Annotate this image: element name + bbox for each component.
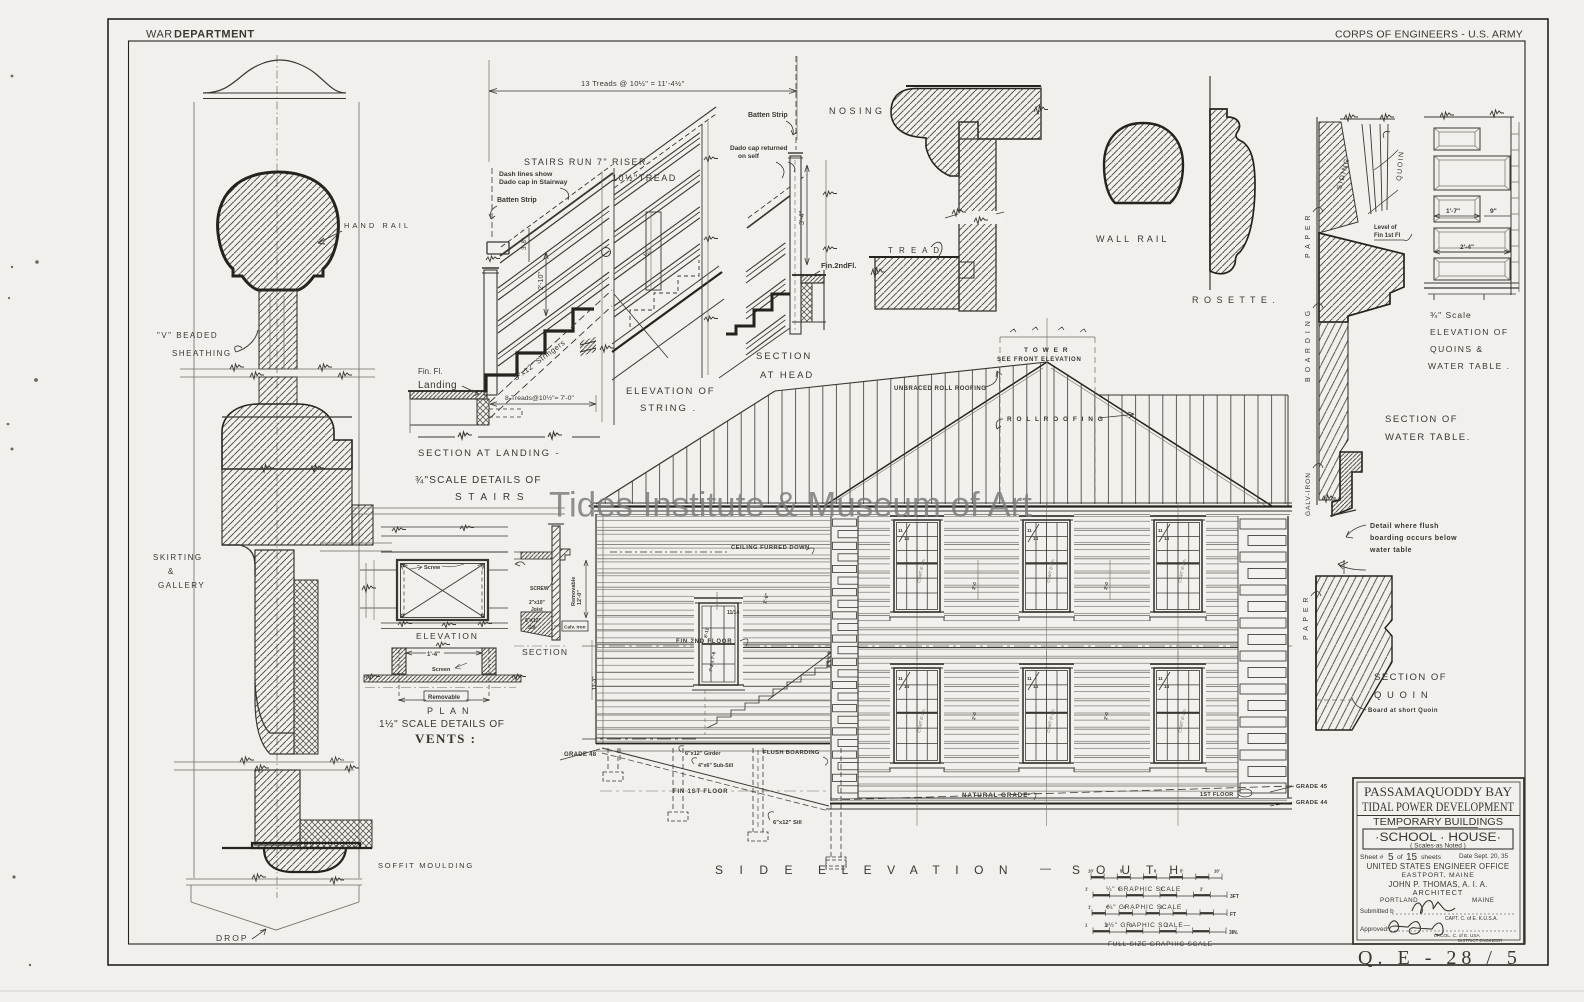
svg-text:¾" GRAPHIC SCALE: ¾" GRAPHIC SCALE — [1107, 904, 1182, 911]
svg-text:Joist: Joist — [531, 607, 543, 613]
svg-text:1½" GRAPHIC SCALE—: 1½" GRAPHIC SCALE— — [1104, 921, 1191, 929]
svg-text:—: — — [1040, 863, 1051, 875]
svg-text:11: 11 — [1158, 528, 1163, 533]
svg-text:SEE FRONT ELEVATION: SEE FRONT ELEVATION — [997, 357, 1082, 363]
svg-text:Approved:: Approved: — [1360, 926, 1389, 933]
svg-text:8-Treads@10½"= 7'-0": 8-Treads@10½"= 7'-0" — [505, 394, 574, 402]
svg-text:GALV-IRON: GALV-IRON — [1305, 472, 1312, 516]
svg-text:SHEATHING: SHEATHING — [172, 349, 232, 358]
svg-text:11: 11 — [1027, 676, 1032, 681]
svg-text:WALL RAIL: WALL RAIL — [1096, 234, 1169, 244]
svg-text:Fin. Fl.: Fin. Fl. — [418, 367, 442, 376]
svg-text:SECTION AT LANDING -: SECTION AT LANDING - — [418, 448, 560, 459]
svg-text:B O A R D I N G: B O A R D I N G — [1305, 309, 1312, 382]
svg-text:1ST FLOOR: 1ST FLOOR — [1200, 792, 1234, 798]
svg-text:UNBRACED ROLL ROOFING: UNBRACED ROLL ROOFING — [894, 386, 986, 392]
svg-text:Dash lines show: Dash lines show — [499, 171, 553, 178]
svg-text:GRADE 44: GRADE 44 — [1296, 800, 1328, 806]
svg-text:Board at short Quoin: Board at short Quoin — [1368, 708, 1438, 714]
svg-text:14: 14 — [904, 536, 910, 541]
svg-text:13 Treads @ 10½" = 11'-4½": 13 Treads @ 10½" = 11'-4½" — [581, 79, 685, 88]
svg-text:14: 14 — [1164, 684, 1170, 689]
svg-text:1': 1' — [1160, 905, 1163, 910]
svg-text:R O S E T T E .: R O S E T T E . — [1192, 295, 1276, 305]
svg-text:8"x12": 8"x12" — [525, 618, 541, 624]
svg-text:Screen: Screen — [432, 667, 451, 673]
svg-text:13'-3": 13'-3" — [592, 676, 598, 690]
svg-text:SECTION: SECTION — [756, 351, 812, 362]
svg-text:PORTLAND: PORTLAND — [1380, 897, 1418, 904]
svg-text:HAND RAIL: HAND RAIL — [344, 221, 411, 230]
svg-text:T R E A D: T R E A D — [888, 246, 941, 255]
svg-text:1'-7": 1'-7" — [1446, 208, 1460, 215]
svg-text:2'-4": 2'-4" — [1460, 244, 1474, 251]
svg-text:3IN.: 3IN. — [1229, 930, 1239, 936]
svg-text:P L A N: P L A N — [427, 706, 471, 716]
svg-text:WATER TABLE.: WATER TABLE. — [1385, 432, 1471, 443]
svg-text:on self: on self — [738, 153, 760, 160]
svg-text:TIDAL POWER DEVELOPMENT: TIDAL POWER DEVELOPMENT — [1362, 800, 1514, 814]
svg-text:10': 10' — [1088, 869, 1094, 874]
svg-text:10': 10' — [1214, 869, 1220, 874]
svg-text:Screw: Screw — [424, 565, 441, 571]
svg-text:¾"SCALE DETAILS OF: ¾"SCALE DETAILS OF — [415, 475, 542, 486]
svg-text:11/14: 11/14 — [727, 610, 739, 616]
svg-text:( Scales-as Noted ): ( Scales-as Noted ) — [1410, 843, 1466, 850]
svg-text:FIN 1ST FLOOR: FIN 1ST FLOOR — [673, 789, 728, 795]
svg-text:Dado cap returned: Dado cap returned — [730, 145, 787, 152]
svg-text:FULL SIZE GRAPHIC SCALE: FULL SIZE GRAPHIC SCALE — [1108, 941, 1213, 948]
svg-text:SECTION OF: SECTION OF — [1385, 414, 1458, 425]
svg-text:&: & — [168, 567, 174, 576]
svg-text:SOFFIT MOULDING: SOFFIT MOULDING — [378, 861, 474, 870]
svg-text:boarding occurs below: boarding occurs below — [1370, 535, 1457, 542]
svg-text:Q. E - 28 / 5: Q. E - 28 / 5 — [1358, 947, 1522, 969]
svg-text:14: 14 — [1033, 536, 1039, 541]
svg-text:S T A I R S: S T A I R S — [455, 492, 526, 503]
svg-text:¾" Scale: ¾" Scale — [1430, 310, 1472, 320]
svg-text:2'-10": 2'-10" — [538, 272, 545, 290]
svg-text:FIN 2ND FLOOR: FIN 2ND FLOOR — [676, 639, 732, 645]
svg-text:P A P E R: P A P E R — [1305, 214, 1312, 258]
svg-text:SIDE: SIDE — [715, 863, 809, 877]
svg-text:Batten Strip: Batten Strip — [748, 112, 788, 119]
svg-text:ELEVATION OF: ELEVATION OF — [1430, 327, 1509, 337]
svg-text:CORPS OF ENGINEERS - U.S. ARMY: CORPS OF ENGINEERS - U.S. ARMY — [1335, 29, 1523, 41]
svg-text:WAR: WAR — [146, 29, 173, 41]
svg-text:3'-4": 3'-4" — [799, 211, 806, 225]
svg-text:UNITED STATES ENGINEER OFFI: UNITED STATES ENGINEER OFFICE — [1367, 862, 1510, 871]
svg-text:SECTION: SECTION — [522, 647, 568, 657]
svg-text:1': 1' — [1088, 905, 1091, 910]
svg-text:VENTS :: VENTS : — [415, 731, 476, 746]
svg-text:Landing: Landing — [418, 380, 457, 391]
svg-text:Date Sept. 20, 35: Date Sept. 20, 35 — [1459, 853, 1509, 860]
svg-text:P A P E R: P A P E R — [1303, 596, 1310, 640]
svg-text:WATER TABLE .: WATER TABLE . — [1428, 361, 1510, 371]
svg-text:11: 11 — [898, 528, 903, 533]
svg-text:14: 14 — [904, 684, 910, 689]
svg-text:1'-4": 1'-4" — [427, 652, 440, 658]
svg-text:14: 14 — [1164, 536, 1170, 541]
svg-text:AT HEAD: AT HEAD — [760, 370, 814, 381]
svg-text:Fin 1st Fl: Fin 1st Fl — [1374, 233, 1401, 239]
svg-text:DISTRICT ENGINEER: DISTRICT ENGINEER — [1458, 938, 1502, 943]
svg-text:Sheet #: Sheet # — [1360, 854, 1384, 861]
svg-text:Batten Strip: Batten Strip — [497, 197, 537, 204]
svg-text:QUOINS &: QUOINS & — [1430, 344, 1484, 354]
svg-text:T O W E R: T O W E R — [1024, 347, 1069, 354]
svg-text:GRADE 45: GRADE 45 — [1296, 784, 1328, 790]
svg-text:NATURAL GRADE: NATURAL GRADE — [962, 792, 1028, 799]
svg-text:Q U O I N: Q U O I N — [1374, 690, 1429, 701]
svg-text:Detail where flush: Detail where flush — [1370, 523, 1439, 530]
svg-text:PASSAMAQUODDY BAY: PASSAMAQUODDY BAY — [1364, 784, 1513, 799]
svg-text:CEILING FURRED DOWN: CEILING FURRED DOWN — [731, 545, 810, 551]
svg-text:DROP: DROP — [216, 933, 249, 943]
svg-text:1': 1' — [1085, 887, 1088, 892]
svg-text:of: of — [1397, 854, 1403, 861]
svg-text:GRADE 48: GRADE 48 — [564, 752, 597, 758]
svg-text:ELEVATION OF: ELEVATION OF — [626, 386, 715, 397]
svg-text:FT: FT — [1230, 912, 1236, 918]
svg-text:ELEVATION: ELEVATION — [818, 863, 1023, 877]
svg-text:SECTION OF: SECTION OF — [1374, 672, 1447, 683]
svg-text:ARCHITECT: ARCHITECT — [1413, 888, 1464, 897]
svg-text:DEPARTMENT: DEPARTMENT — [174, 29, 255, 41]
svg-text:R O L L R O O F I N G: R O L L R O O F I N G — [1007, 416, 1104, 423]
svg-text:Dado cap in Stairway: Dado cap in Stairway — [499, 179, 568, 186]
svg-text:1': 1' — [1160, 887, 1163, 892]
svg-text:14: 14 — [1033, 684, 1039, 689]
svg-text:2': 2' — [1200, 887, 1203, 892]
svg-text:11: 11 — [1158, 676, 1163, 681]
svg-text:sheets: sheets — [1421, 854, 1442, 861]
svg-text:SCREW: SCREW — [530, 586, 549, 592]
svg-text:Removable: Removable — [428, 695, 461, 701]
svg-text:6"x12" Sill: 6"x12" Sill — [773, 820, 802, 826]
svg-text:12'-0": 12'-0" — [577, 590, 583, 605]
svg-text:TEMPORARY BUILDINGS: TEMPORARY BUILDINGS — [1373, 816, 1503, 828]
svg-text:5': 5' — [1120, 869, 1123, 874]
svg-text:Calv. Iron: Calv. Iron — [564, 625, 586, 631]
svg-text:11: 11 — [898, 676, 903, 681]
svg-text:1½" SCALE DETAILS OF: 1½" SCALE DETAILS OF — [379, 719, 504, 730]
svg-text:NOSING: NOSING — [829, 106, 886, 116]
svg-text:STAIRS RUN 7" RISER: STAIRS RUN 7" RISER — [524, 157, 647, 167]
svg-text:Submitted b: Submitted b — [1360, 908, 1394, 915]
svg-text:9": 9" — [1490, 208, 1497, 215]
svg-text:GALLERY: GALLERY — [158, 581, 205, 590]
svg-text:6"x12" Girder: 6"x12" Girder — [685, 751, 721, 757]
svg-text:"V" BEADED: "V" BEADED — [157, 331, 218, 340]
svg-text:11: 11 — [1027, 528, 1032, 533]
svg-text:2"x10": 2"x10" — [529, 600, 545, 606]
svg-text:EASTPORT, MAINE: EASTPORT, MAINE — [1401, 872, 1474, 879]
svg-text:Level of: Level of — [1374, 225, 1398, 231]
svg-text:3'-8": 3'-8" — [522, 238, 528, 250]
svg-text:FLUSH BOARDING: FLUSH BOARDING — [763, 750, 820, 756]
svg-text:CAPT. C. of E. K.U.S.A.: CAPT. C. of E. K.U.S.A. — [1445, 916, 1498, 922]
svg-text:water table: water table — [1369, 547, 1412, 554]
svg-text:Sill: Sill — [528, 625, 536, 631]
svg-text:3FT: 3FT — [1230, 894, 1239, 900]
svg-text:5': 5' — [1180, 869, 1183, 874]
svg-text:Tides Institute & Museum of Ar: Tides Institute & Museum of Art — [549, 486, 1032, 525]
svg-text:ELEVATION: ELEVATION — [416, 631, 479, 641]
svg-text:4"x6" Sub-Sill: 4"x6" Sub-Sill — [698, 763, 734, 769]
svg-text:SKIRTING: SKIRTING — [153, 553, 203, 562]
svg-text:Removable: Removable — [571, 577, 577, 606]
svg-text:MAINE: MAINE — [1472, 897, 1494, 904]
svg-text:STRING .: STRING . — [640, 403, 697, 414]
